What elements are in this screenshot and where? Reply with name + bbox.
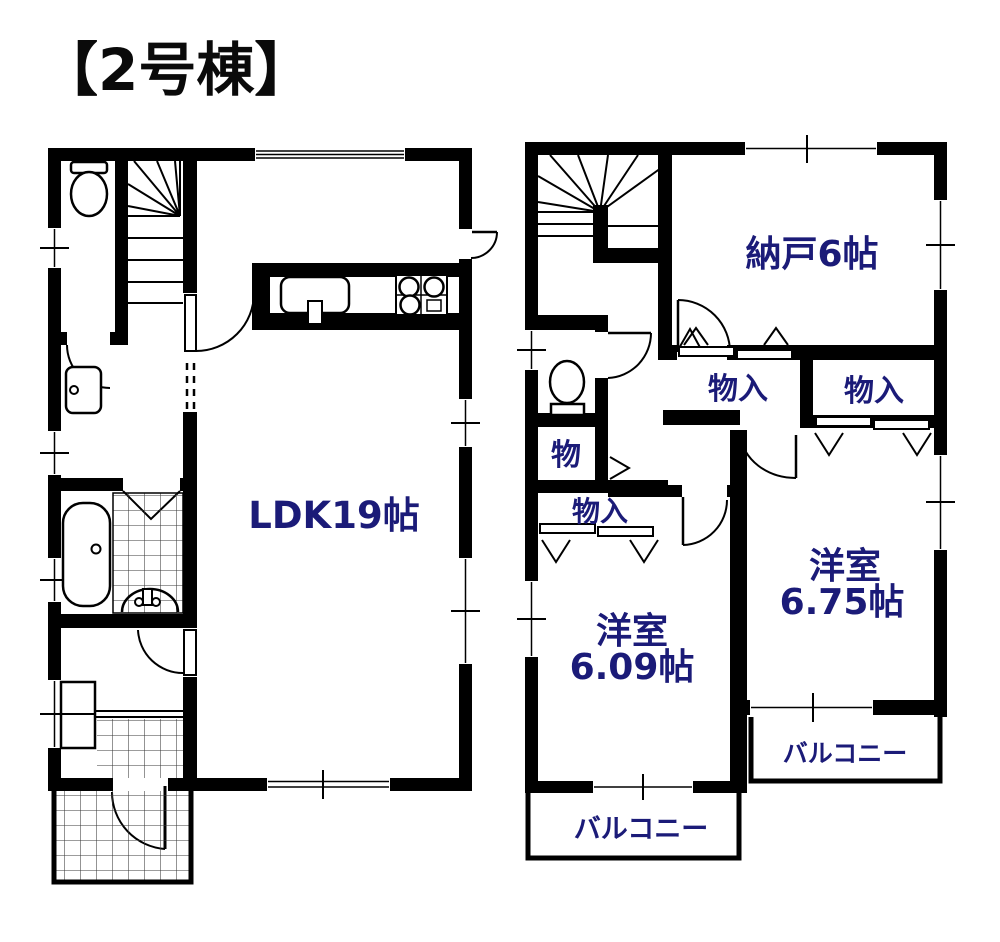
floorplan-drawing: 【2号棟】 [0,0,1000,942]
porch-tile [54,791,191,882]
room-label-bedroom-west-size: 6.09帖 [570,647,695,688]
floor1-walls [48,148,472,791]
bathroom-fixtures [63,493,183,613]
door-kitchen-side [471,232,497,258]
door-hall-ldk [185,293,254,351]
room-label-bedroom-west-name: 洋室 [596,611,668,652]
floor1-windows [40,151,480,799]
floor2-plan: 納戸6帖 洋室 6.75帖 洋室 6.09帖 物入 物入 物 物入 バルコニー … [517,135,955,858]
page-title: 【2号棟】 [40,36,312,104]
closet-label-hall-west: 物入 [708,372,768,407]
window [40,432,69,474]
floor1-plan: LDK19帖 [40,148,497,882]
closet-label-bedroom-west: 物入 [572,495,628,528]
window [451,559,480,663]
balcony-label-east: バルコニー [783,739,908,768]
window [517,582,546,656]
window [926,456,955,549]
floor2-walls [525,142,947,793]
closet-label-small: 物 [551,438,581,473]
window [451,400,480,446]
room-label-storage: 納戸6帖 [745,234,878,275]
window [926,201,955,289]
window [746,135,876,163]
door-toilet-2f [608,333,651,378]
stairs-1f [128,161,183,303]
window [751,693,872,722]
stove [396,275,447,315]
room-label-bedroom-east-name: 洋室 [809,546,881,587]
washbasin-fixture [66,367,101,413]
door-hall-entrance [138,630,196,675]
toilet-fixture-2f [550,361,584,415]
window [517,331,546,369]
door-bedroom-west [683,497,727,545]
room-label-bedroom-east-size: 6.75帖 [780,582,905,623]
balcony-label-south: バルコニー [574,814,708,845]
floorplan-page: 【2号棟】 [0,0,1000,942]
closet-label-hall-east: 物入 [844,374,904,409]
room-label-ldk: LDK19帖 [248,494,419,537]
door-washroom-opening [187,363,194,412]
door-bedroom-east [740,435,796,478]
toilet-fixture [71,162,107,216]
door-closet-small-bifold [610,457,629,479]
window [594,774,692,800]
door-storage-room [678,300,730,352]
floor1-openings [48,148,472,791]
window [40,229,69,267]
